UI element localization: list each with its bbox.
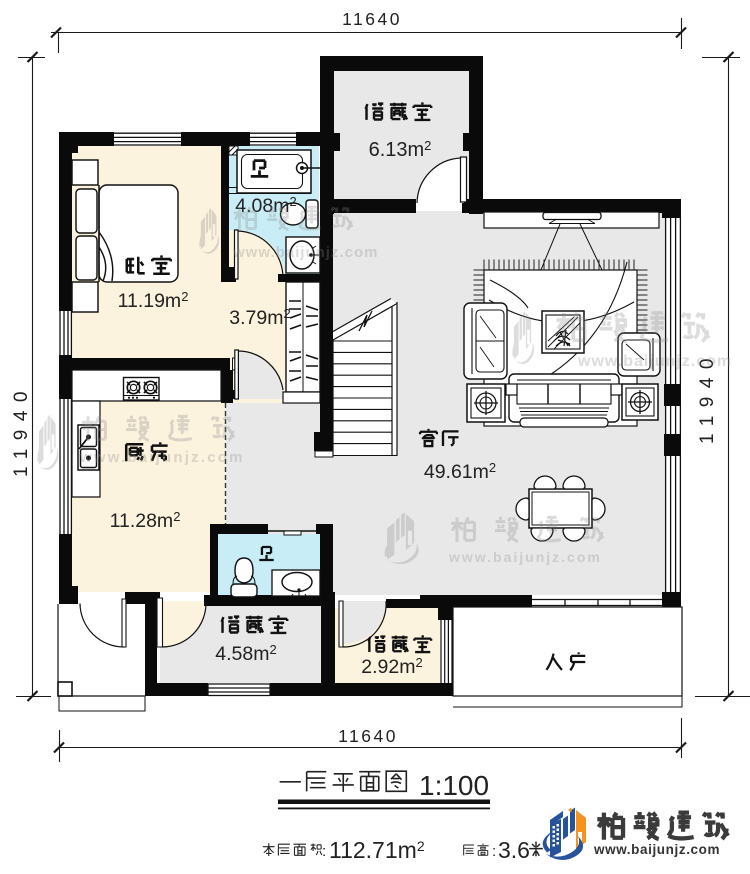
svg-text:www.baijunjz.com: www.baijunjz.com [232,244,378,261]
svg-text:www.baijunjz.com: www.baijunjz.com [593,842,720,857]
svg-text:www.baijunjz.com: www.baijunjz.com [79,449,245,466]
svg-text:11640: 11640 [342,9,402,29]
svg-text:11.19m2: 11.19m2 [118,289,189,312]
svg-text:1:100: 1:100 [419,770,489,801]
svg-text:11640: 11640 [338,726,398,746]
svg-text:www.baijunjz.com: www.baijunjz.com [577,353,732,370]
svg-text:11.28m2: 11.28m2 [110,509,181,532]
svg-text:6.13m2: 6.13m2 [369,138,432,161]
svg-text:112.71m2: 112.71m2 [329,837,425,863]
svg-text:www.baijunjz.com: www.baijunjz.com [448,549,602,565]
svg-text:3.79m2: 3.79m2 [229,306,290,329]
svg-text::: : [322,843,326,860]
svg-text:4.58m2: 4.58m2 [215,642,276,665]
svg-text:49.61m2: 49.61m2 [424,460,496,483]
svg-text::: : [492,843,496,860]
svg-text:3.6: 3.6 [498,837,530,863]
svg-text:2.92m2: 2.92m2 [361,655,422,678]
svg-text:11940: 11940 [11,383,32,477]
